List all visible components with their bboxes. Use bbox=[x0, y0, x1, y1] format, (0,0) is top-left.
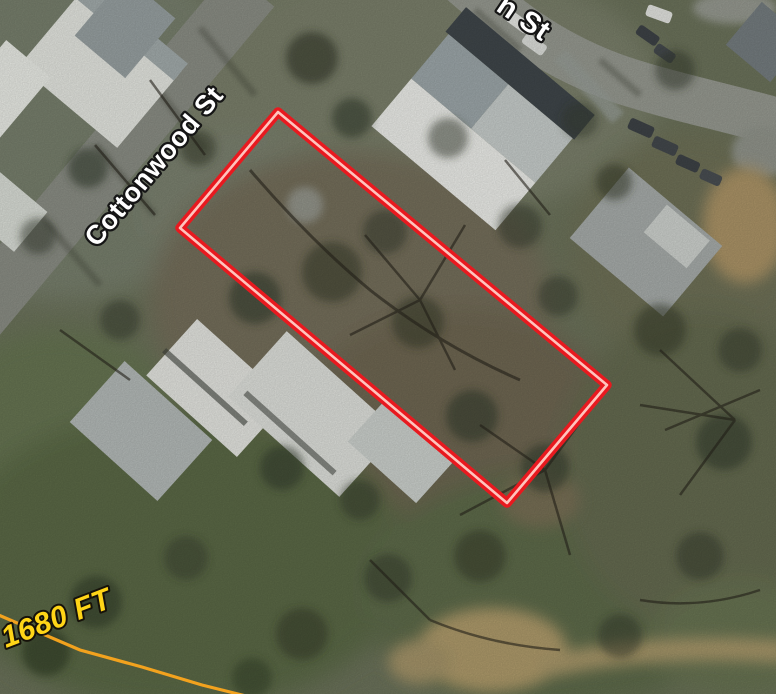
satellite-map-view[interactable]: 1680 FT Cottonwood St n St bbox=[0, 0, 776, 694]
satellite-map-canvas[interactable]: 1680 FT Cottonwood St n St bbox=[0, 0, 776, 694]
imagery-texture bbox=[0, 0, 776, 694]
